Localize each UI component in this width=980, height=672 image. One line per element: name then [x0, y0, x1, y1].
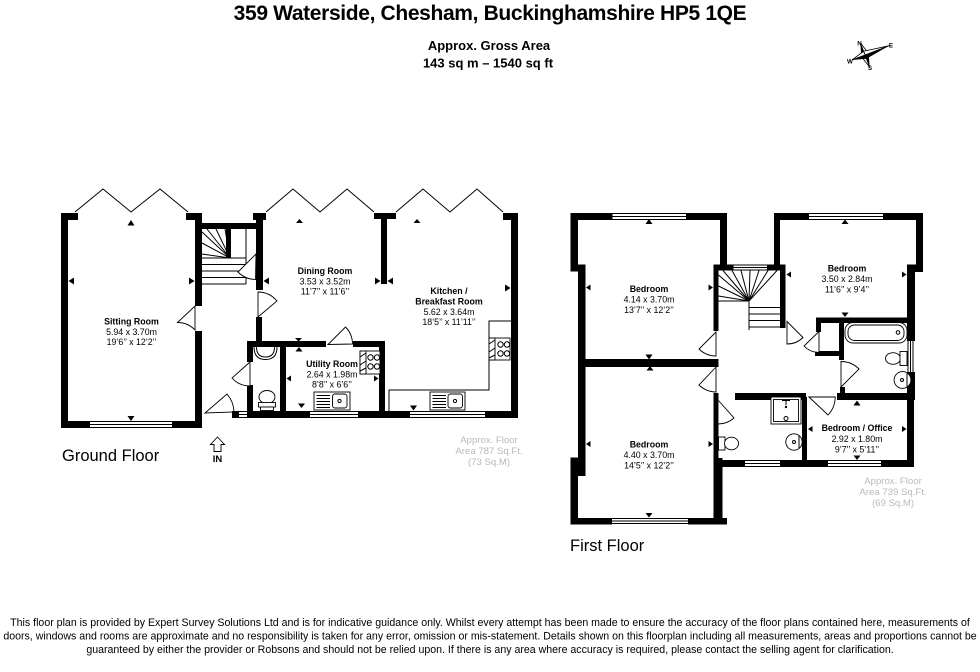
svg-text:2.92 x 1.80m: 2.92 x 1.80m: [832, 434, 883, 444]
svg-text:Breakfast Room: Breakfast Room: [415, 297, 483, 307]
svg-text:Sitting Room: Sitting Room: [104, 317, 159, 327]
svg-text:Dining Room: Dining Room: [298, 266, 353, 276]
svg-text:Approx. Gross Area: Approx. Gross Area: [428, 38, 551, 53]
svg-text:18’5’’ x 11’11’’: 18’5’’ x 11’11’’: [422, 317, 475, 327]
svg-text:Kitchen /: Kitchen /: [430, 286, 468, 296]
svg-text:359 Waterside, Chesham, Buckin: 359 Waterside, Chesham, Buckinghamshire …: [234, 2, 747, 25]
svg-text:2.64 x 1.98m: 2.64 x 1.98m: [307, 370, 358, 380]
svg-text:doors, windows and rooms are a: doors, windows and rooms are approximate…: [3, 631, 976, 643]
svg-text:Approx. Floor: Approx. Floor: [864, 476, 922, 487]
svg-text:This floor plan is provided by: This floor plan is provided by Expert Su…: [10, 617, 970, 629]
svg-text:E: E: [889, 43, 893, 50]
svg-text:Bedroom / Office: Bedroom / Office: [822, 423, 893, 433]
svg-text:19’6’’ x 12’2’’: 19’6’’ x 12’2’’: [107, 337, 157, 347]
svg-text:Utility Room: Utility Room: [306, 359, 358, 369]
svg-text:S: S: [868, 65, 872, 72]
svg-text:Area 739 Sq.Ft.: Area 739 Sq.Ft.: [859, 487, 926, 498]
svg-text:11’7’’ x 11’6’’: 11’7’’ x 11’6’’: [301, 287, 349, 297]
svg-text:5.94 x 3.70m: 5.94 x 3.70m: [106, 327, 157, 337]
svg-text:Bedroom: Bedroom: [630, 440, 669, 450]
svg-text:4.40 x 3.70m: 4.40 x 3.70m: [624, 450, 675, 460]
svg-text:guaranteed by either the provi: guaranteed by either the provider or Rob…: [86, 644, 893, 656]
svg-text:9’7’’ x 5’11’’: 9’7’’ x 5’11’’: [835, 445, 879, 455]
svg-text:N: N: [857, 41, 862, 48]
svg-text:Bedroom: Bedroom: [828, 264, 867, 274]
svg-text:143 sq m – 1540 sq ft: 143 sq m – 1540 sq ft: [423, 56, 554, 71]
svg-text:First Floor: First Floor: [570, 537, 645, 555]
svg-text:5.62 x 3.64m: 5.62 x 3.64m: [424, 307, 475, 317]
svg-text:8’8’’ x 6’6’’: 8’8’’ x 6’6’’: [312, 380, 352, 390]
svg-text:11’6’’ x 9’4’’: 11’6’’ x 9’4’’: [825, 285, 869, 295]
svg-text:14’5’’ x 12’2’’: 14’5’’ x 12’2’’: [624, 461, 674, 471]
svg-text:Bedroom: Bedroom: [630, 284, 669, 294]
svg-text:IN: IN: [213, 454, 223, 465]
svg-text:4.14 x 3.70m: 4.14 x 3.70m: [624, 295, 675, 305]
svg-text:3.53 x 3.52m: 3.53 x 3.52m: [300, 277, 351, 287]
svg-text:Approx. Floor: Approx. Floor: [460, 435, 518, 446]
svg-text:W: W: [847, 59, 853, 66]
svg-text:Area 787 Sq.Ft.: Area 787 Sq.Ft.: [455, 446, 522, 457]
svg-text:(73 Sq.M): (73 Sq.M): [468, 457, 510, 468]
svg-text:Ground Floor: Ground Floor: [62, 447, 160, 465]
svg-text:(69 Sq.M): (69 Sq.M): [872, 498, 914, 509]
svg-text:3.50 x 2.84m: 3.50 x 2.84m: [822, 274, 873, 284]
svg-text:13’7’’ x 12’2’’: 13’7’’ x 12’2’’: [624, 305, 674, 315]
